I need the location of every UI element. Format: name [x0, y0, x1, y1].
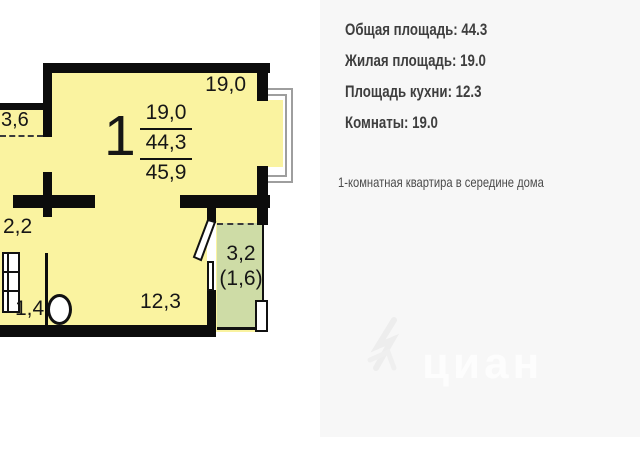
floor-plan: 19,0 1 19,0 44,3 45,9 3,6 2,2 1,4 12,3 3…: [0, 0, 320, 455]
ladder-rung-1: [4, 271, 18, 273]
ladder-rung-2: [4, 290, 18, 292]
area-stack-total: 44,3: [140, 130, 192, 160]
wall-bottom: [0, 325, 216, 337]
info-panel: Общая площадь: 44.3 Жилая площадь: 19.0 …: [320, 0, 640, 437]
label-kitchen: 12,3: [140, 291, 181, 313]
area-stack-total-with-balcony: 45,9: [140, 160, 192, 188]
label-left-balcony: 3,6: [1, 110, 29, 131]
cian-watermark: циан: [422, 342, 543, 386]
balcony-window: [255, 300, 268, 332]
stat-total-area: Общая площадь: 44.3: [345, 14, 487, 45]
label-wc: 1,4: [15, 298, 44, 320]
listing-floorplan-view: Общая площадь: 44.3 Жилая площадь: 19.0 …: [0, 0, 640, 455]
wall-right-upper: [257, 73, 268, 101]
cian-logo-icon: [364, 316, 416, 382]
wall-top: [45, 63, 270, 73]
label-balcony-reduced: (1,6): [216, 268, 266, 290]
stat-rooms: Комнаты: 19.0: [345, 107, 487, 138]
wall-left-main: [43, 63, 52, 137]
apartment-description: 1-комнатная квартира в середине дома: [338, 174, 544, 190]
label-bathroom: 2,2: [3, 216, 32, 238]
wall-cross-horizontal: [13, 195, 95, 208]
bay-window-notch-fill: [255, 100, 283, 167]
label-living-area: 19,0: [198, 74, 246, 96]
wall-mid-horizontal: [180, 195, 270, 208]
ladder-rail: [7, 254, 9, 311]
toilet-icon: [47, 294, 72, 325]
stat-kitchen-area: Площадь кухни: 12.3: [345, 76, 487, 107]
left-balcony-dashed-line: [0, 135, 43, 137]
area-stack-living: 19,0: [140, 100, 192, 130]
area-stack: 19,0 44,3 45,9: [140, 100, 192, 188]
wall-bath-divider: [45, 253, 48, 332]
label-room-number: 1: [104, 109, 136, 164]
stat-living-area: Жилая площадь: 19.0: [345, 45, 487, 76]
stats-block: Общая площадь: 44.3 Жилая площадь: 19.0 …: [345, 14, 527, 138]
label-balcony-area: 3,2: [216, 243, 266, 265]
